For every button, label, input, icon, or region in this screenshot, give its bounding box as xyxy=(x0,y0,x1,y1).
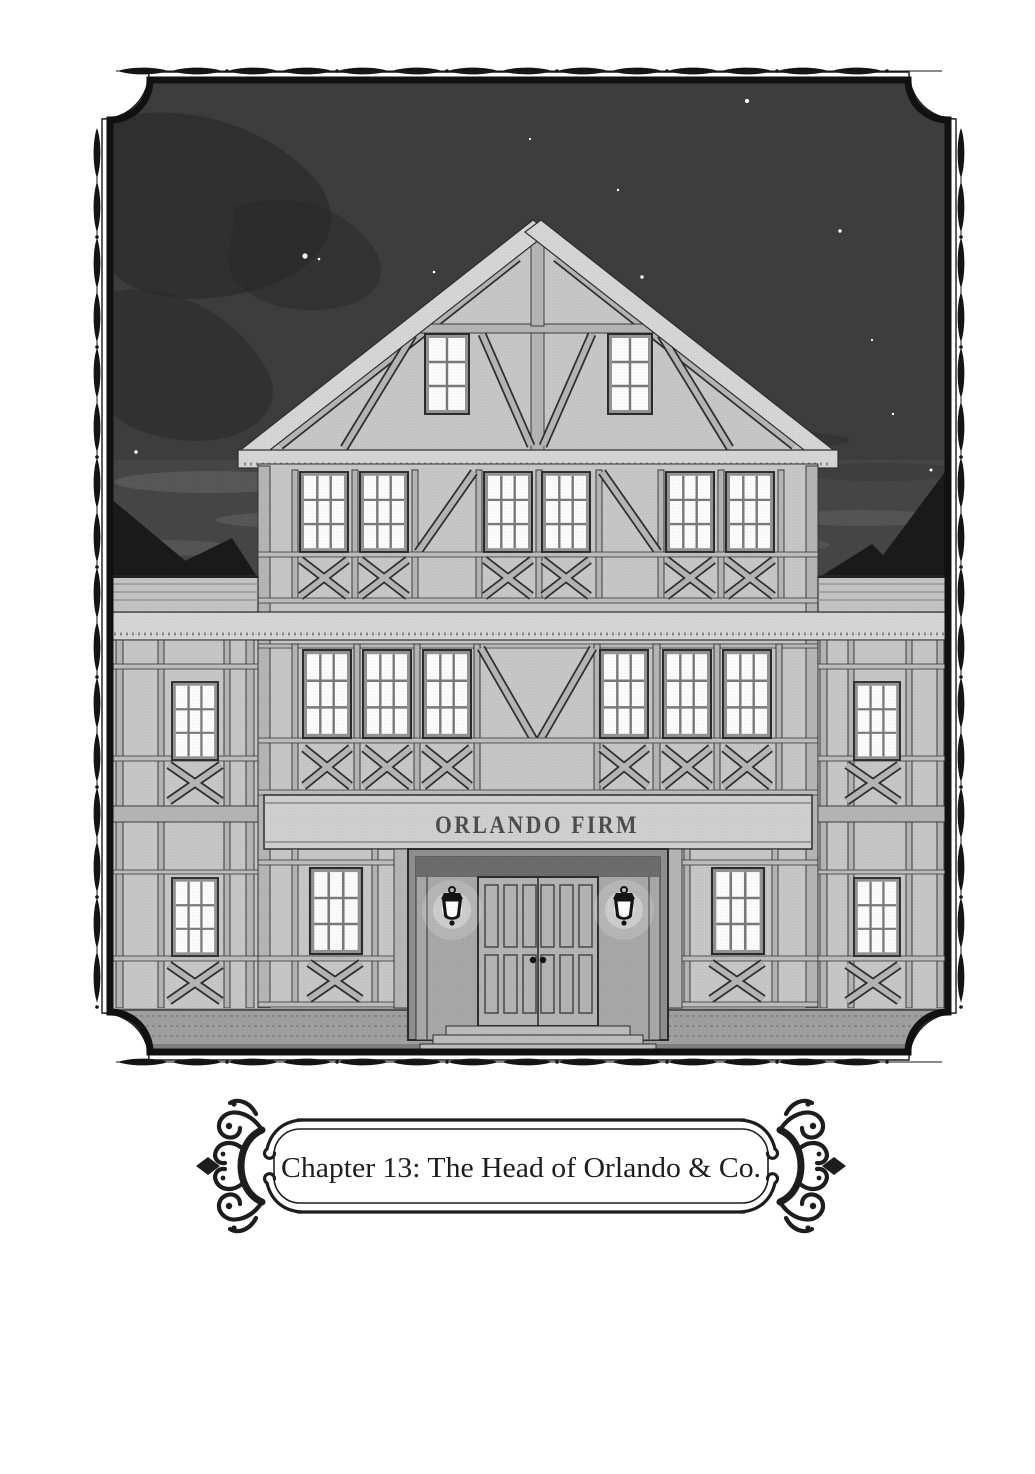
chapter-title-plate: Chapter 13: The Head of Orlando & Co. xyxy=(196,1101,846,1231)
right-flourish-icon xyxy=(780,1101,846,1231)
chapter-title: Chapter 13: The Head of Orlando & Co. xyxy=(281,1152,761,1184)
left-flourish-icon xyxy=(196,1101,262,1231)
manga-page: ORLANDO FIRM xyxy=(0,0,1035,1474)
halftone-overlay xyxy=(110,80,948,1052)
panel-artwork: ORLANDO FIRM xyxy=(95,80,970,1052)
